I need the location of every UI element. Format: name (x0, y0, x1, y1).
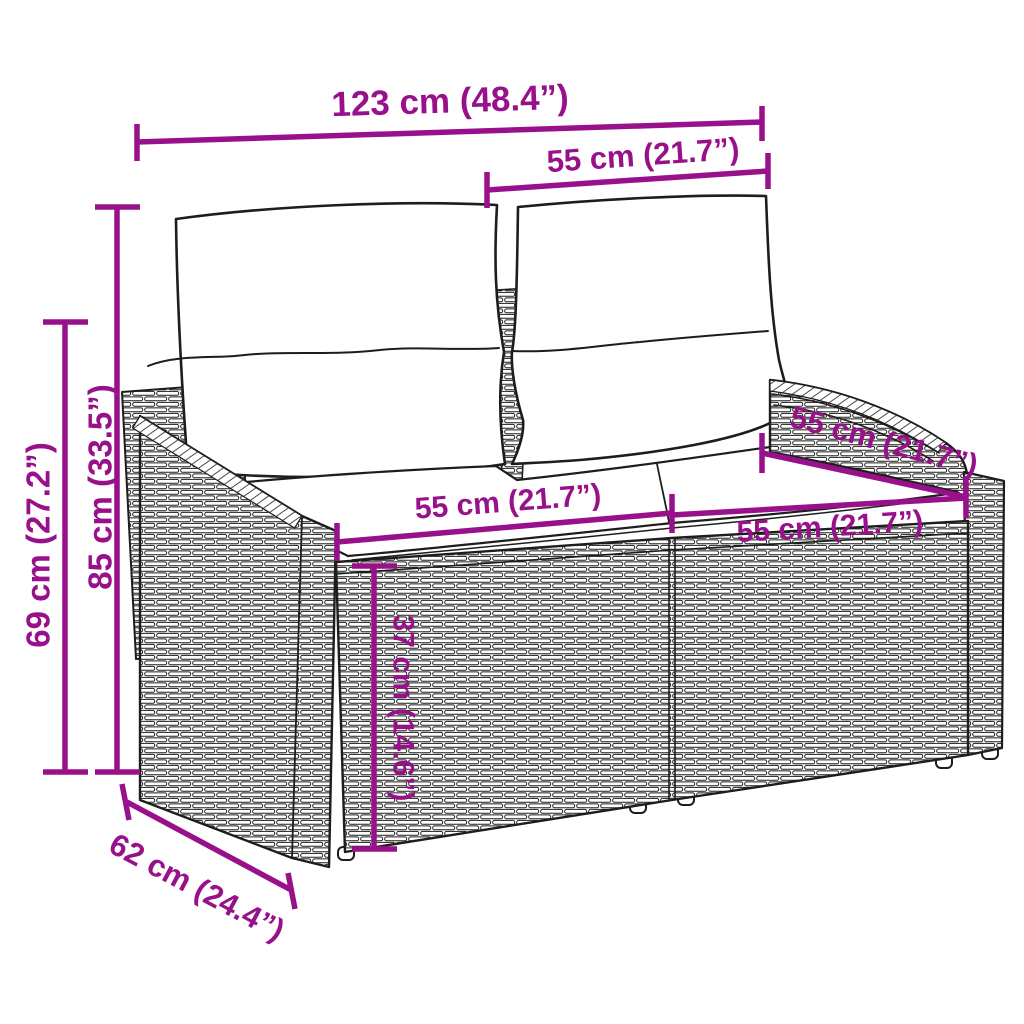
sofa-dimension-diagram: 123 cm (48.4”) 55 cm (21.7”) 85 cm (33.5… (0, 0, 1024, 1024)
right-armrest-post (964, 472, 1004, 755)
dim-total-height-label: 85 cm (33.5”) (82, 384, 119, 589)
dim-backrest-section-width-label: 55 cm (21.7”) (546, 131, 741, 179)
back-pillow-right (512, 196, 790, 464)
dim-seat-height-label: 37 cm (14.6”) (387, 615, 420, 802)
seat-base-front-face (336, 521, 968, 852)
seat-base (336, 521, 968, 852)
back-pillow-right-body (512, 196, 790, 464)
diagram-canvas: 123 cm (48.4”) 55 cm (21.7”) 85 cm (33.5… (0, 0, 1024, 1024)
dim-armrest-height: 69 cm (27.2”) (20, 322, 89, 772)
dim-overall-width-label: 123 cm (48.4”) (331, 78, 569, 124)
back-pillow-left (148, 203, 505, 477)
dim-armrest-height-label: 69 cm (27.2”) (20, 442, 57, 647)
back-pillow-left-body (176, 203, 505, 477)
